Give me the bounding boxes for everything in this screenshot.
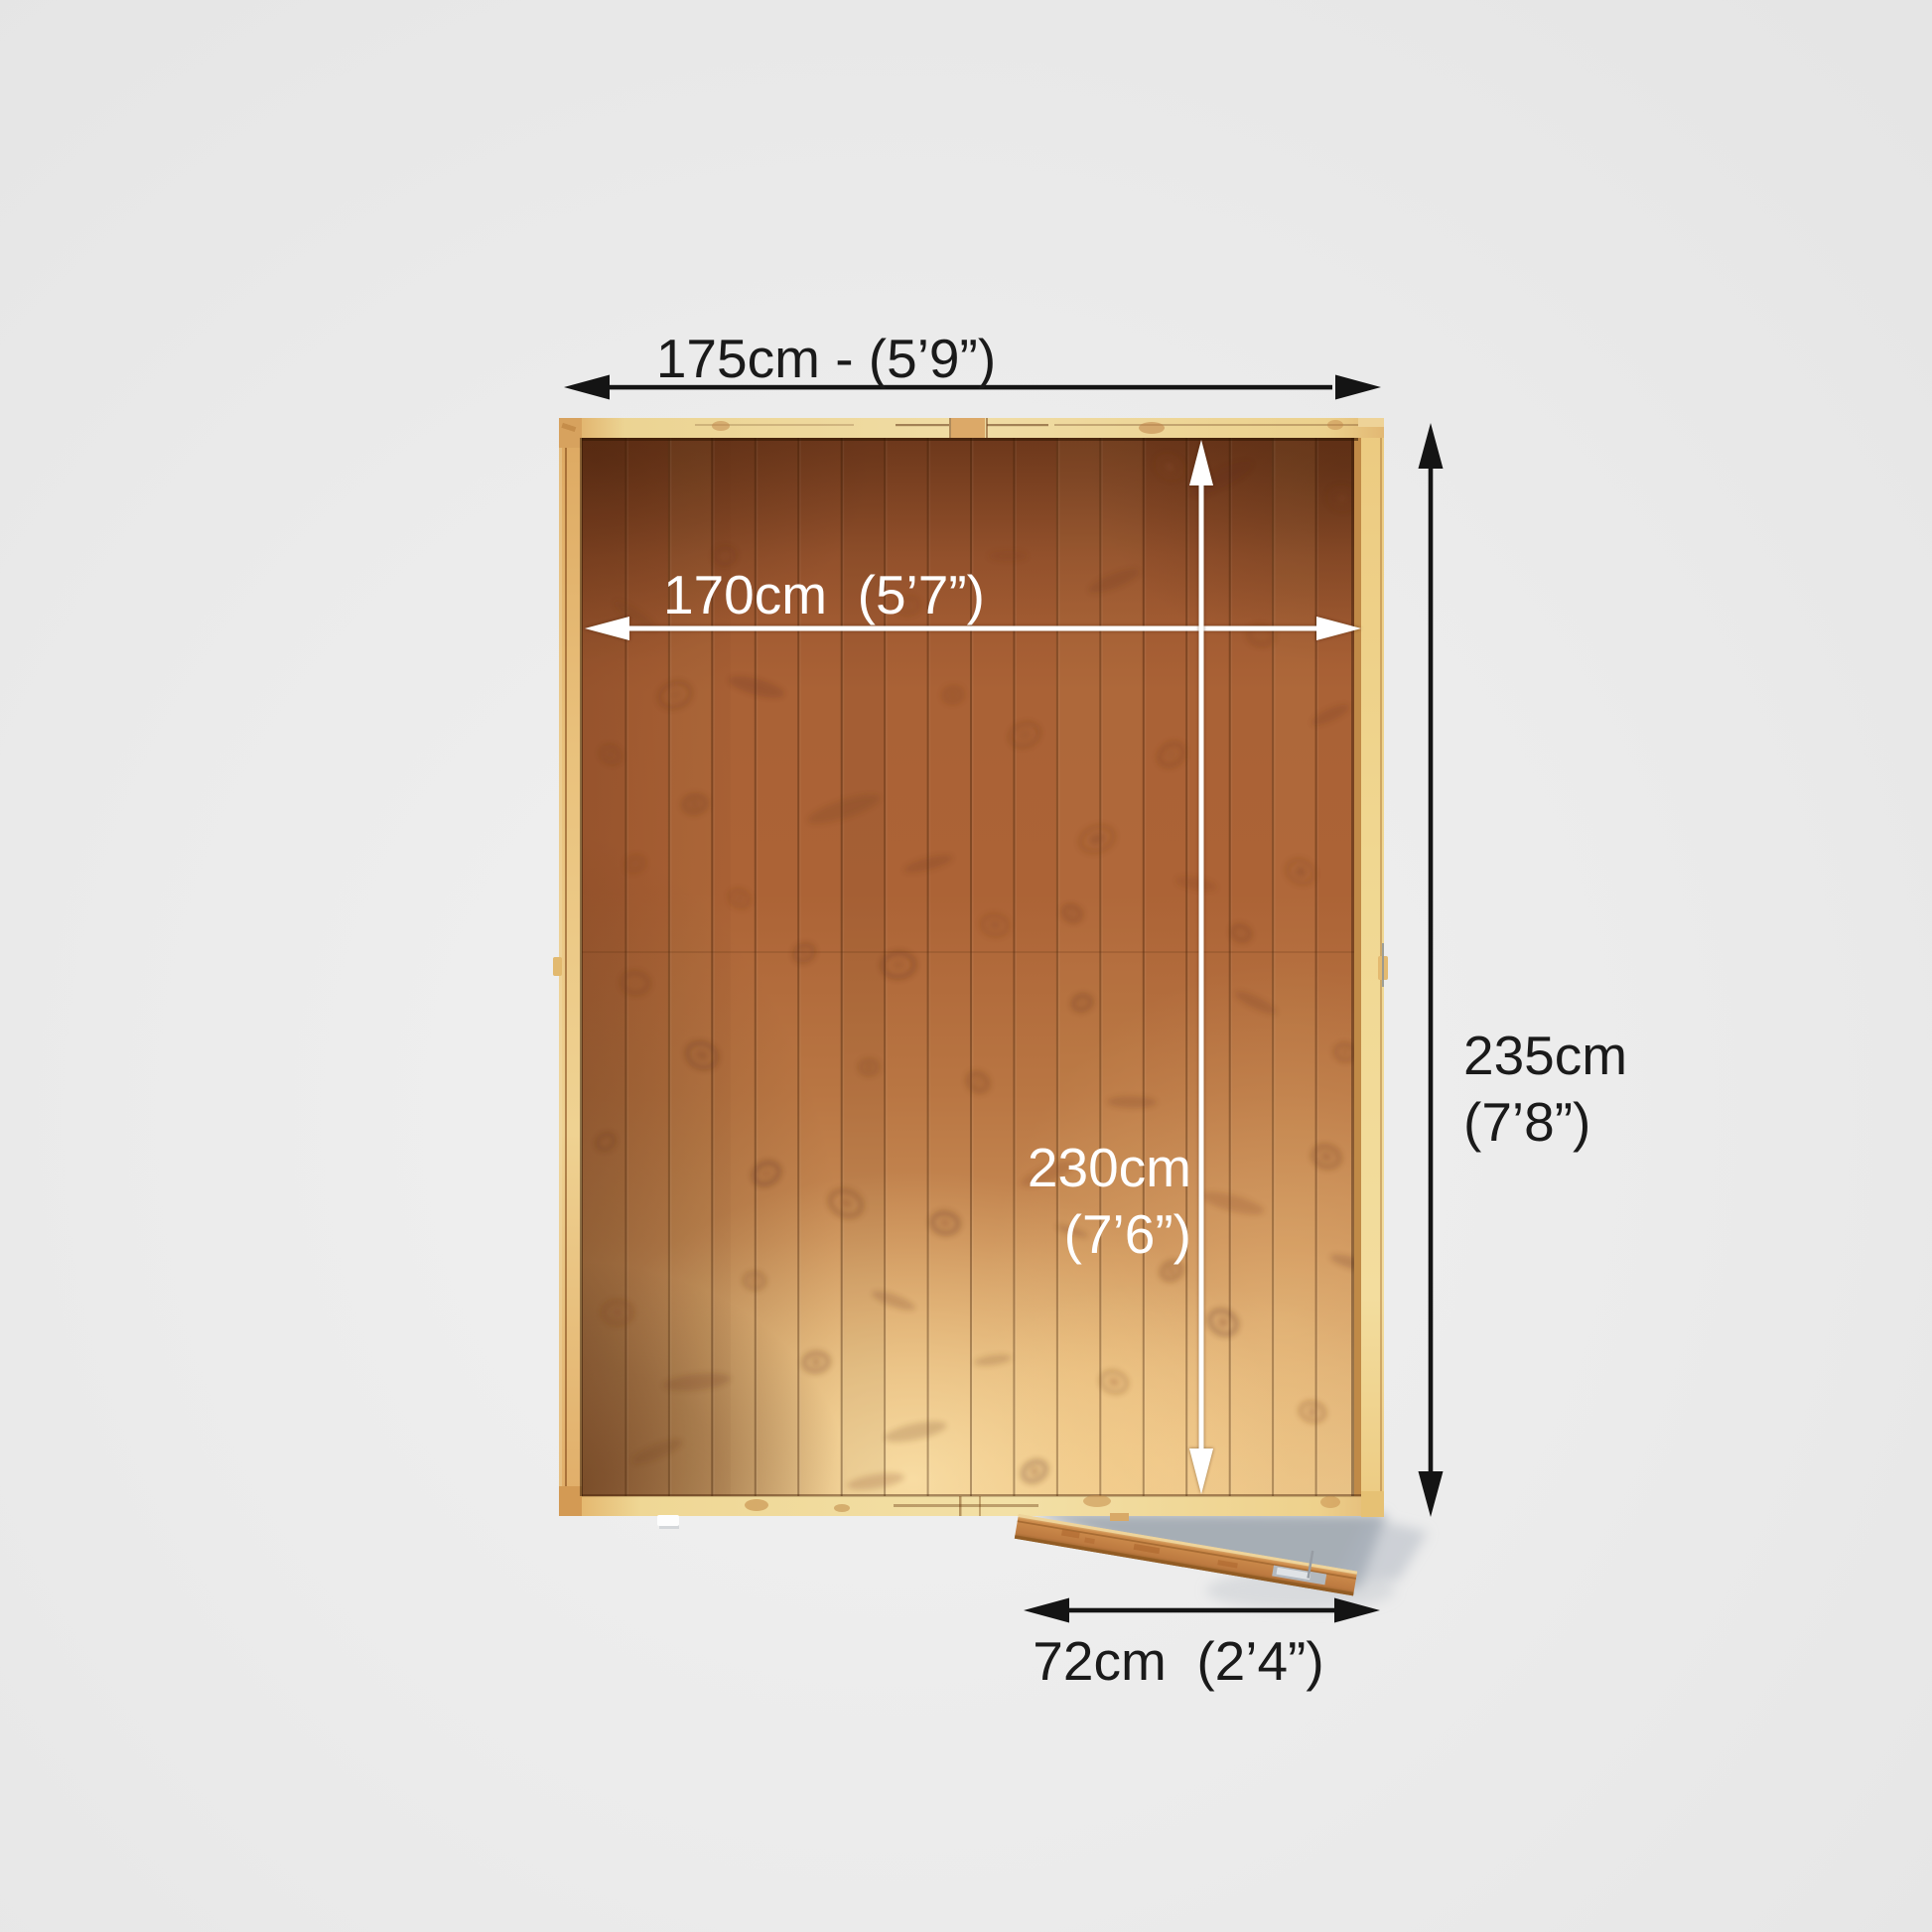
- svg-text:230cm: 230cm: [1028, 1137, 1191, 1198]
- svg-text:(7’6”): (7’6”): [1064, 1203, 1191, 1265]
- svg-text:175cm - (5’9”): 175cm - (5’9”): [656, 328, 996, 389]
- svg-text:235cm: 235cm: [1463, 1025, 1627, 1086]
- svg-text:170cm (5’7”): 170cm (5’7”): [663, 564, 985, 625]
- svg-text:72cm (2’4”): 72cm (2’4”): [1033, 1630, 1323, 1692]
- svg-text:(7’8”): (7’8”): [1463, 1091, 1590, 1153]
